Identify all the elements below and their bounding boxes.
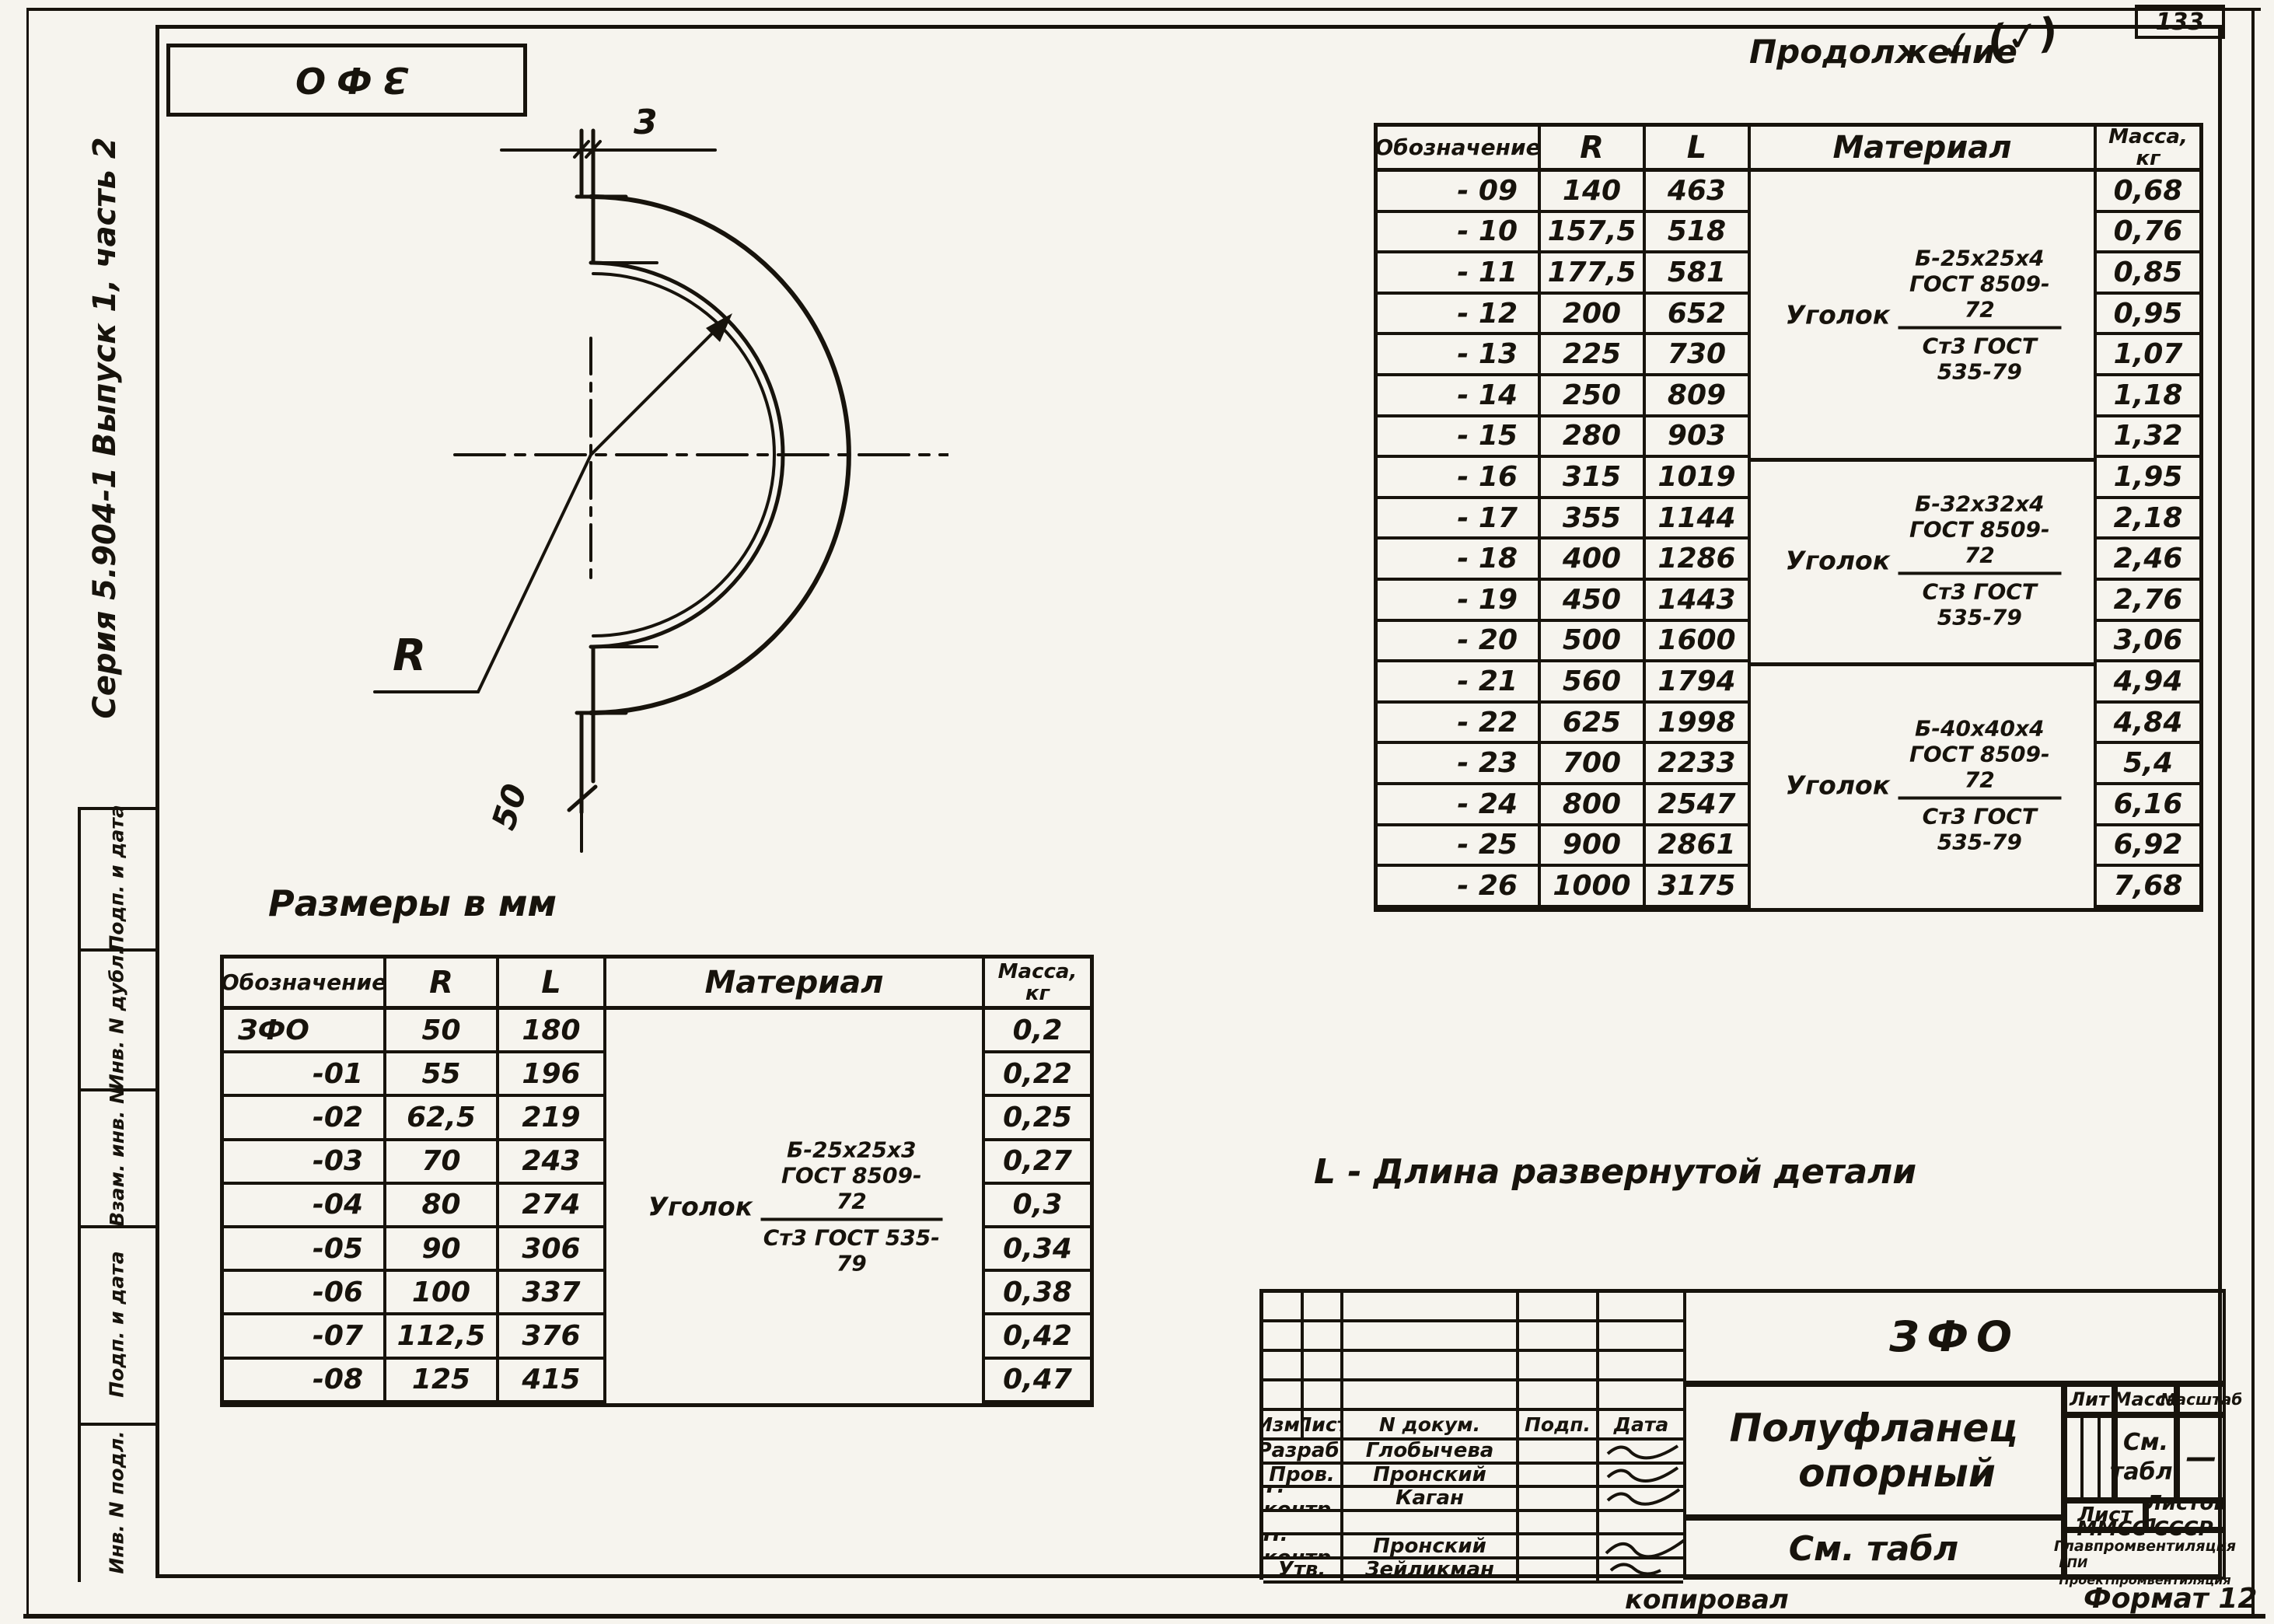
- drawing-sheet: 133 ЗФО Серия 5.904-1 Выпуск 1, часть 2 …: [0, 0, 2274, 1624]
- cell-mark: - 09: [1378, 172, 1541, 213]
- cell-mark: - 24: [1378, 785, 1541, 826]
- cell-r: 900: [1541, 826, 1646, 868]
- cell-mark: -08: [224, 1360, 386, 1403]
- page-number-box: 133: [2135, 5, 2225, 39]
- cell-mass: 2,76: [2097, 581, 2199, 622]
- cell-mass: 0,76: [2097, 213, 2199, 254]
- scale-header-cell: Масштаб: [2177, 1384, 2226, 1415]
- header-r: R: [386, 959, 499, 1010]
- cell-r: 112,5: [386, 1315, 499, 1359]
- signature-squiggle: [1608, 1468, 1678, 1481]
- col-sign: Подп.: [1519, 1411, 1599, 1441]
- lit-subdivider: [2098, 1415, 2101, 1500]
- cell-r: 90: [386, 1228, 499, 1272]
- material-gost: Б-25х25х3 ГОСТ 8509-72: [760, 1137, 942, 1221]
- organization-cell: ММСС СССР Главпромвентиляция ГПИ Проектп…: [2064, 1530, 2226, 1580]
- mass-value-line2: табл.: [2110, 1458, 2181, 1487]
- signature-squiggle: [1606, 1539, 1685, 1556]
- signer-role: [1263, 1512, 1343, 1536]
- empty-row: [1263, 1293, 1683, 1322]
- cell-mark: - 19: [1378, 581, 1541, 622]
- cell-l: 1286: [1646, 540, 1751, 581]
- col-izm: Изм.: [1263, 1411, 1304, 1441]
- cell-l: 415: [499, 1360, 606, 1403]
- cell-l: 243: [499, 1141, 606, 1185]
- cell-mass: 1,07: [2097, 335, 2199, 376]
- part-title-line2: опорный: [1798, 1451, 1996, 1496]
- cell-mark: - 20: [1378, 622, 1541, 663]
- margin-box-vzam-inv: Взам. инв. N: [78, 1088, 155, 1225]
- margin-box-label: Подп. и дата: [106, 805, 128, 951]
- cell-mass: 2,46: [2097, 540, 2199, 581]
- cell-mark: -04: [224, 1185, 386, 1228]
- cell-l: 463: [1646, 172, 1751, 213]
- table-row: -07 112,5 376 0,42: [224, 1315, 1090, 1359]
- cell-mark: - 17: [1378, 499, 1541, 540]
- cell-mass: 4,84: [2097, 704, 2199, 745]
- dim-3-label: 3: [634, 103, 658, 142]
- cell-l: 1998: [1646, 704, 1751, 745]
- cell-mass: 7,68: [2097, 867, 2199, 908]
- header-r: R: [1541, 127, 1646, 172]
- cell-material-gap: [606, 1053, 985, 1097]
- cell-l: 196: [499, 1053, 606, 1097]
- mass-value-cell: См. табл.: [2115, 1415, 2177, 1500]
- cell-r: 400: [1541, 540, 1646, 581]
- material-group-2: Уголок Б-32х32х4 ГОСТ 8509-72 Ст3 ГОСТ 5…: [1786, 491, 2062, 630]
- table-row: -02 62,5 219 0,25: [224, 1097, 1090, 1140]
- cell-material-gap: [606, 1315, 985, 1359]
- material-fraction: Б-40х40х4 ГОСТ 8509-72 Ст3 ГОСТ 535-79: [1898, 716, 2061, 855]
- cell-material-gap: [606, 1097, 985, 1140]
- material-gost: Б-25х25х4 ГОСТ 8509-72: [1898, 246, 2061, 330]
- cell-l: 337: [499, 1272, 606, 1315]
- scale-header: Масштаб: [2160, 1390, 2243, 1409]
- header-mark: Обозначение: [224, 959, 386, 1010]
- part-title-line1: Полуфланец: [1730, 1406, 2018, 1451]
- cell-l: 2233: [1646, 744, 1751, 785]
- group-separator: [1751, 662, 2097, 666]
- cell-mark: - 11: [1378, 253, 1541, 295]
- cell-l: 376: [499, 1315, 606, 1359]
- cell-r: 225: [1541, 335, 1646, 376]
- margin-box-sign-date-1: Подп. и дата: [78, 807, 155, 948]
- cell-mark: - 25: [1378, 826, 1541, 868]
- signature-cell: [1519, 1465, 1599, 1489]
- cell-l: 652: [1646, 295, 1751, 336]
- cell-l: 3175: [1646, 867, 1751, 908]
- cell-mass: 0,22: [985, 1053, 1090, 1097]
- table-row: - 21 560 1794 4,94: [1378, 662, 2199, 704]
- cell-mark: - 21: [1378, 662, 1541, 704]
- material-fraction: Б-32х32х4 ГОСТ 8509-72 Ст3 ГОСТ 535-79: [1898, 491, 2061, 630]
- cell-l: 809: [1646, 376, 1751, 417]
- see-table: См. табл: [1789, 1529, 1958, 1569]
- cell-r: 700: [1541, 744, 1646, 785]
- cell-mass: 0,3: [985, 1185, 1090, 1228]
- sizes-table: Обозначение R L Материал Масса, кг ЗФО 5…: [220, 955, 1094, 1407]
- material-group-3: Уголок Б-40х40х4 ГОСТ 8509-72 Ст3 ГОСТ 5…: [1786, 716, 2062, 855]
- cell-mass: 0,34: [985, 1228, 1090, 1272]
- header-l: L: [499, 959, 606, 1010]
- cell-mass: 5,4: [2097, 744, 2199, 785]
- table-row: - 09 140 463 0,68: [1378, 172, 2199, 213]
- cell-mass: 2,18: [2097, 499, 2199, 540]
- scale-value-cell: —: [2177, 1415, 2226, 1500]
- cell-mark: - 18: [1378, 540, 1541, 581]
- signature-cell: [1519, 1488, 1599, 1512]
- cell-mark: - 14: [1378, 376, 1541, 417]
- cell-mass: 1,18: [2097, 376, 2199, 417]
- cell-l: 1443: [1646, 581, 1751, 622]
- org-line1: ММСС СССР: [2077, 1521, 2213, 1538]
- material-group: Уголок Б-25х25х3 ГОСТ 8509-72 Ст3 ГОСТ 5…: [648, 1137, 943, 1276]
- header-mass: Масса, кг: [2097, 127, 2199, 172]
- see-table-cell: См. табл: [1683, 1517, 2064, 1580]
- material-gost: Б-40х40х4 ГОСТ 8509-72: [1898, 716, 2061, 800]
- cell-mass: 1,32: [2097, 417, 2199, 459]
- cell-r: 1000: [1541, 867, 1646, 908]
- material-prefix: Уголок: [1786, 546, 1891, 576]
- material-steel: Ст3 ГОСТ 535-79: [1898, 330, 2061, 385]
- signature-cell: [1519, 1441, 1599, 1465]
- header-mark: Обозначение: [1378, 127, 1541, 172]
- cell-mark: -07: [224, 1315, 386, 1359]
- signature-cell: [1519, 1512, 1599, 1536]
- header-mass-line1: Масса,: [2108, 126, 2188, 148]
- cell-mark: -03: [224, 1141, 386, 1185]
- margin-box-inv-dupl: Инв. N дубл.: [78, 948, 155, 1088]
- cell-mark: - 15: [1378, 417, 1541, 459]
- material-steel: Ст3 ГОСТ 535-79: [760, 1221, 942, 1276]
- designation: ЗФО: [1889, 1312, 2020, 1361]
- header-mass-line2: кг: [1025, 983, 1050, 1004]
- cell-l: 518: [1646, 213, 1751, 254]
- cell-material-gap: [1751, 417, 2097, 459]
- lit-header-cell: Лит: [2064, 1384, 2115, 1415]
- cell-material-gap: [606, 1272, 985, 1315]
- table-row: ЗФО 50 180 0,2: [224, 1010, 1090, 1053]
- cell-mark: - 13: [1378, 335, 1541, 376]
- cell-r: 50: [386, 1010, 499, 1053]
- material-gost: Б-32х32х4 ГОСТ 8509-72: [1898, 491, 2061, 575]
- cell-l: 903: [1646, 417, 1751, 459]
- signer-name: Глобычева: [1343, 1441, 1519, 1465]
- cell-material-gap: [1751, 172, 2097, 213]
- cell-r: 500: [1541, 622, 1646, 663]
- cell-mass: 6,16: [2097, 785, 2199, 826]
- signer-name: Каган: [1343, 1488, 1519, 1512]
- cell-l: 2861: [1646, 826, 1751, 868]
- page-number: 133: [2156, 9, 2205, 36]
- cell-mark: ЗФО: [224, 1010, 386, 1053]
- scale-value: —: [2186, 1440, 2217, 1476]
- half-flange-drawing: 3 R 50: [171, 39, 948, 863]
- cell-l: 180: [499, 1010, 606, 1053]
- group-separator: [1751, 458, 2097, 462]
- cell-r: 70: [386, 1141, 499, 1185]
- cell-r: 140: [1541, 172, 1646, 213]
- col-list: Лист: [1304, 1411, 1344, 1441]
- material-steel: Ст3 ГОСТ 535-79: [1898, 800, 2061, 855]
- cell-l: 1600: [1646, 622, 1751, 663]
- signer-name: Пронский: [1343, 1535, 1519, 1559]
- dim-50-label: 50: [484, 779, 535, 834]
- org-line2: Главпромвентиляция: [2054, 1538, 2236, 1555]
- cell-mark: -05: [224, 1228, 386, 1272]
- cell-r: 800: [1541, 785, 1646, 826]
- signature-squiggle: [1608, 1446, 1678, 1458]
- cell-mark: - 16: [1378, 458, 1541, 499]
- signature-cell: [1519, 1535, 1599, 1559]
- cell-l: 2547: [1646, 785, 1751, 826]
- signer-name: Зейликман: [1343, 1559, 1519, 1584]
- cell-mass: 0,68: [2097, 172, 2199, 213]
- outer-border-left: [26, 8, 29, 1614]
- cell-l: 274: [499, 1185, 606, 1228]
- cell-mass: 0,95: [2097, 295, 2199, 336]
- cell-l: 581: [1646, 253, 1751, 295]
- cell-r: 450: [1541, 581, 1646, 622]
- format-label: Формат 12: [2084, 1583, 2257, 1615]
- empty-row: [1263, 1352, 1683, 1381]
- radius-label: R: [393, 630, 426, 681]
- cell-r: 625: [1541, 704, 1646, 745]
- signer-name: Пронский: [1343, 1465, 1519, 1489]
- continuation-table: Обозначение R L Материал Масса, кг - 09 …: [1374, 123, 2203, 912]
- cell-r: 125: [386, 1360, 499, 1403]
- cell-r: 315: [1541, 458, 1646, 499]
- cell-mass: 0,47: [985, 1360, 1090, 1403]
- lit-header: Лит: [2070, 1388, 2109, 1410]
- cell-r: 250: [1541, 376, 1646, 417]
- table-row: -08 125 415 0,47: [224, 1360, 1090, 1403]
- table-row: - 26 1000 3175 7,68: [1378, 867, 2199, 908]
- cell-mark: - 10: [1378, 213, 1541, 254]
- table-row: - 15 280 903 1,32: [1378, 417, 2199, 459]
- signer-role: Пров.: [1263, 1465, 1343, 1489]
- signer-role: Утв.: [1263, 1559, 1343, 1584]
- signature-squiggle: [1611, 1564, 1661, 1573]
- margin-box-sign-date-2: Подп. и дата: [78, 1225, 155, 1423]
- cell-mass: 0,2: [985, 1010, 1090, 1053]
- signature-squiggle: [1608, 1490, 1679, 1504]
- empty-row: [1263, 1322, 1683, 1352]
- cell-mark: -06: [224, 1272, 386, 1315]
- header-mass-line2: кг: [2136, 148, 2160, 169]
- cell-mass: 0,42: [985, 1315, 1090, 1359]
- empty-row: [1263, 1381, 1683, 1411]
- header-mass: Масса, кг: [985, 959, 1090, 1010]
- signer-role: Т. контр.: [1263, 1488, 1343, 1512]
- margin-box-label: Взам. инв. N: [106, 1088, 128, 1227]
- margin-box-label: Подп. и дата: [106, 1251, 128, 1397]
- outer-border-top: [28, 8, 2261, 11]
- cell-mark: -02: [224, 1097, 386, 1140]
- signature-cell: [1519, 1559, 1599, 1584]
- cell-l: 1019: [1646, 458, 1751, 499]
- outer-border-right: [2251, 8, 2255, 1614]
- cell-mass: 0,25: [985, 1097, 1090, 1140]
- table-header-row: Обозначение R L Материал Масса, кг: [1378, 127, 2199, 172]
- cell-r: 280: [1541, 417, 1646, 459]
- margin-box-label: Инв. N подл.: [106, 1430, 128, 1573]
- cell-mass: 4,94: [2097, 662, 2199, 704]
- table-header-row: Обозначение R L Материал Масса, кг: [224, 959, 1090, 1010]
- cell-mark: - 12: [1378, 295, 1541, 336]
- cell-material-gap: [1751, 662, 2097, 704]
- margin-box-inv-podl: Инв. N подл.: [78, 1423, 155, 1582]
- col-doc: N докум.: [1343, 1411, 1519, 1441]
- cell-r: 55: [386, 1053, 499, 1097]
- cell-l: 730: [1646, 335, 1751, 376]
- cell-r: 200: [1541, 295, 1646, 336]
- material-steel: Ст3 ГОСТ 535-79: [1898, 575, 2061, 630]
- cell-mass: 3,06: [2097, 622, 2199, 663]
- signer-role: Н. контр.: [1263, 1535, 1343, 1559]
- cell-mark: - 26: [1378, 867, 1541, 908]
- table-row: -06 100 337 0,38: [224, 1272, 1090, 1315]
- cell-r: 80: [386, 1185, 499, 1228]
- table-row: -01 55 196 0,22: [224, 1053, 1090, 1097]
- cell-r: 157,5: [1541, 213, 1646, 254]
- cell-material-gap: [606, 1010, 985, 1053]
- header-material: Материал: [1751, 127, 2097, 172]
- signer-name: [1343, 1512, 1519, 1536]
- lit-value-cell: [2064, 1415, 2115, 1500]
- material-fraction: Б-25х25х3 ГОСТ 8509-72 Ст3 ГОСТ 535-79: [760, 1137, 942, 1276]
- cell-mass: 6,92: [2097, 826, 2199, 868]
- outer-border-bottom: [23, 1614, 2265, 1619]
- part-title-cell: Полуфланец опорный: [1683, 1384, 2064, 1517]
- cell-r: 560: [1541, 662, 1646, 704]
- cell-r: 355: [1541, 499, 1646, 540]
- signer-role: Разраб.: [1263, 1441, 1343, 1465]
- cell-l: 306: [499, 1228, 606, 1272]
- margin-box-label: Инв. N дубл.: [106, 947, 128, 1090]
- cell-mark: - 22: [1378, 704, 1541, 745]
- cell-l: 1794: [1646, 662, 1751, 704]
- cell-r: 100: [386, 1272, 499, 1315]
- cell-mass: 0,38: [985, 1272, 1090, 1315]
- cell-l: 219: [499, 1097, 606, 1140]
- cell-r: 62,5: [386, 1097, 499, 1140]
- material-prefix: Уголок: [1786, 770, 1891, 801]
- designation-cell: ЗФО: [1683, 1289, 2226, 1384]
- series-label: Серия 5.904-1 Выпуск 1, часть 2: [87, 72, 123, 784]
- cell-mass: 1,95: [2097, 458, 2199, 499]
- cell-mass: 0,85: [2097, 253, 2199, 295]
- cell-material-gap: [1751, 867, 2097, 908]
- cell-l: 1144: [1646, 499, 1751, 540]
- cell-material-gap: [606, 1360, 985, 1403]
- material-prefix: Уголок: [648, 1192, 753, 1222]
- header-mass-line1: Масса,: [998, 961, 1078, 983]
- copied-by-label: копировал: [1625, 1584, 1789, 1615]
- material-prefix: Уголок: [1786, 300, 1891, 330]
- material-fraction: Б-25х25х4 ГОСТ 8509-72 Ст3 ГОСТ 535-79: [1898, 246, 2061, 385]
- dimensions-note: Размеры в мм: [268, 882, 557, 924]
- header-material: Материал: [606, 959, 985, 1010]
- mass-value-line1: См.: [2123, 1428, 2168, 1458]
- cell-r: 177,5: [1541, 253, 1646, 295]
- length-note: L - Длина развернутой детали: [1314, 1152, 1916, 1192]
- cell-mark: - 23: [1378, 744, 1541, 785]
- cell-mass: 0,27: [985, 1141, 1090, 1185]
- material-group-1: Уголок Б-25х25х4 ГОСТ 8509-72 Ст3 ГОСТ 5…: [1786, 246, 2062, 385]
- cell-mark: -01: [224, 1053, 386, 1097]
- lit-subdivider: [2080, 1415, 2084, 1500]
- header-l: L: [1646, 127, 1751, 172]
